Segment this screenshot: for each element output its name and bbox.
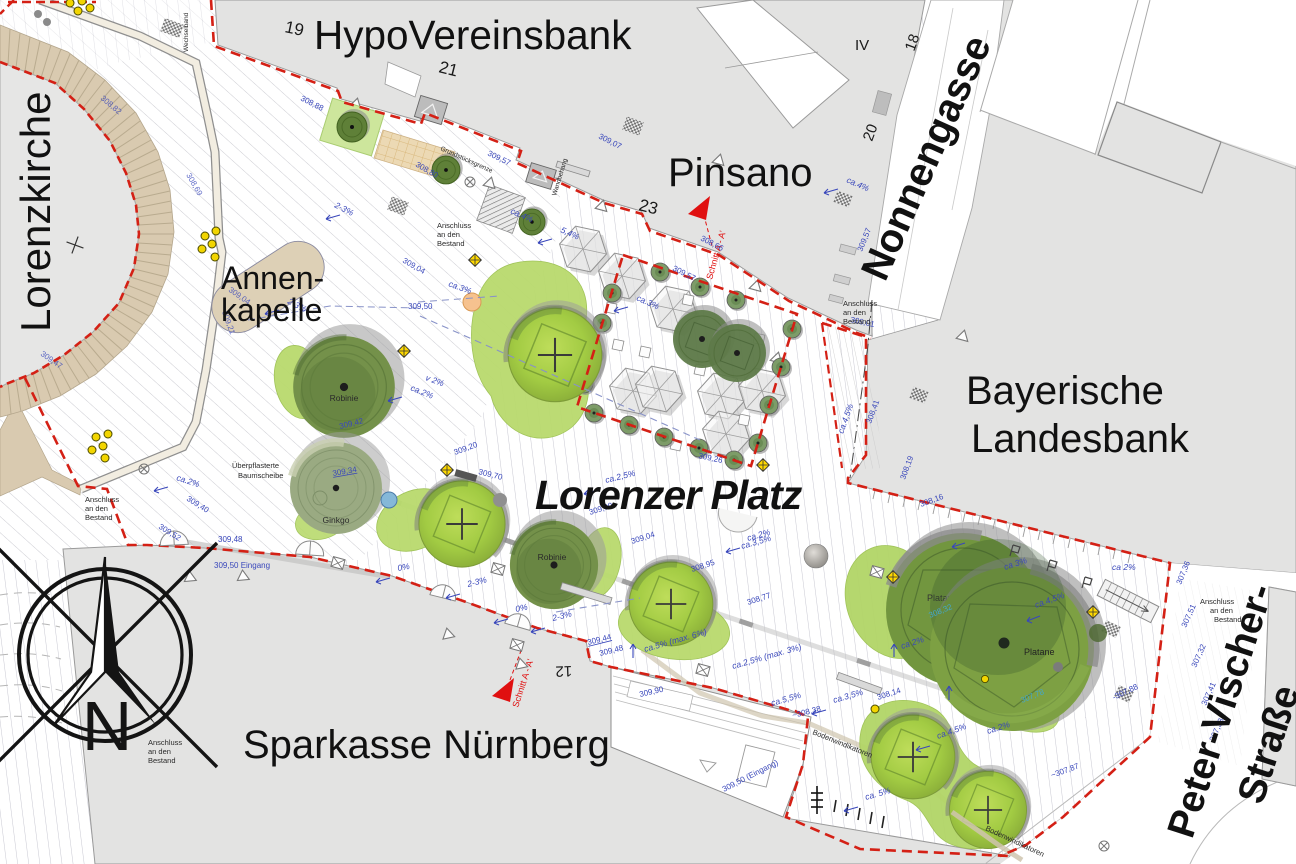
svg-text:ca 2%: ca 2%: [1112, 562, 1136, 572]
svg-text:kapelle: kapelle: [221, 292, 322, 328]
svg-text:309,50 Eingang: 309,50 Eingang: [214, 561, 270, 570]
svg-text:Platane: Platane: [1024, 647, 1055, 657]
svg-text:Bestand: Bestand: [437, 239, 465, 248]
svg-text:19: 19: [283, 17, 305, 40]
svg-text:an den: an den: [437, 230, 460, 239]
svg-text:Anschluss: Anschluss: [148, 738, 182, 747]
svg-text:Überpflasterte: Überpflasterte: [232, 461, 279, 470]
svg-text:Robinie: Robinie: [330, 393, 359, 403]
svg-text:Wechselband: Wechselband: [183, 12, 190, 52]
svg-text:Annen-: Annen-: [221, 260, 324, 296]
svg-text:Anschluss: Anschluss: [1200, 597, 1234, 606]
svg-text:Bestand: Bestand: [843, 317, 871, 326]
svg-text:Lorenzer Platz: Lorenzer Platz: [535, 472, 803, 518]
svg-text:IV: IV: [855, 37, 869, 54]
svg-text:12: 12: [555, 662, 572, 680]
svg-text:309,48: 309,48: [218, 535, 243, 544]
svg-text:HypoVereinsbank: HypoVereinsbank: [314, 12, 632, 58]
svg-text:N: N: [82, 687, 133, 765]
svg-text:Ginkgo: Ginkgo: [323, 515, 350, 525]
svg-text:Robinie: Robinie: [538, 552, 567, 562]
svg-text:an den: an den: [85, 504, 108, 513]
svg-text:309,50: 309,50: [408, 302, 433, 311]
svg-text:Anschluss: Anschluss: [85, 495, 119, 504]
svg-text:Anschluss: Anschluss: [843, 299, 877, 308]
svg-text:Bestand: Bestand: [85, 513, 113, 522]
svg-text:Anschluss: Anschluss: [437, 221, 471, 230]
svg-text:an den: an den: [148, 747, 171, 756]
svg-text:Bestand: Bestand: [148, 756, 176, 765]
svg-text:Pinsano: Pinsano: [668, 151, 813, 195]
svg-text:Bayerische: Bayerische: [966, 369, 1164, 413]
svg-text:an den: an den: [843, 308, 866, 317]
svg-text:Lorenzkirche: Lorenzkirche: [12, 92, 59, 332]
svg-text:Baumscheibe: Baumscheibe: [238, 471, 283, 480]
svg-text:Sparkasse Nürnberg: Sparkasse Nürnberg: [243, 723, 610, 767]
svg-text:Landesbank: Landesbank: [971, 417, 1190, 461]
